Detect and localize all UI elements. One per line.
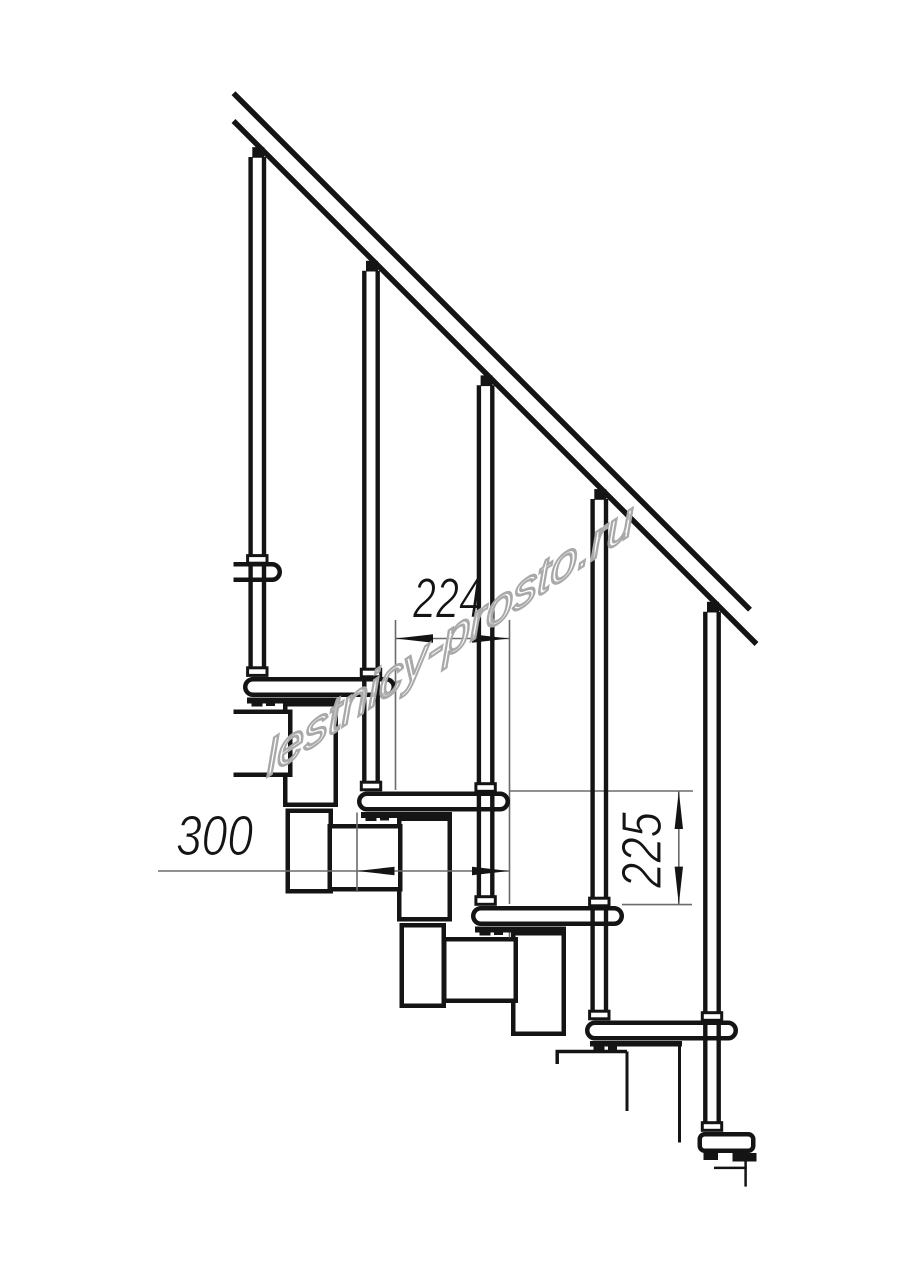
svg-text:225: 225 — [610, 812, 674, 889]
svg-text:300: 300 — [176, 804, 253, 868]
